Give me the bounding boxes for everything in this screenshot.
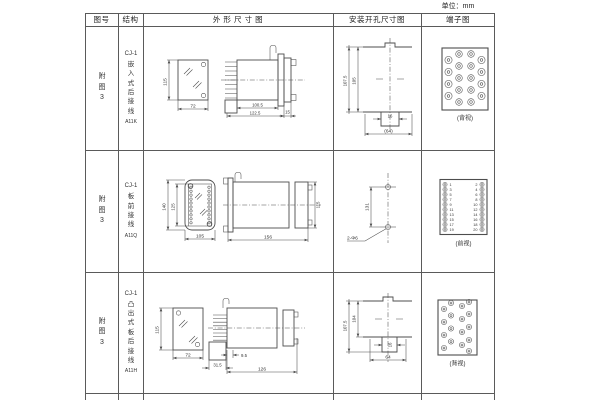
terminal-pins bbox=[445, 51, 485, 106]
front-view: 140 125 105 bbox=[162, 180, 216, 241]
a11k-outline-drawing: 115 72 100.5 122.5 15 bbox=[143, 26, 333, 150]
a11q-outline-drawing: 140 125 105 156 115 bbox=[143, 150, 333, 272]
svg-text:18: 18 bbox=[473, 223, 477, 227]
dim-label: 105 bbox=[196, 234, 204, 240]
view-label: (背视) bbox=[450, 360, 466, 368]
dim-label: 72 bbox=[190, 104, 196, 110]
svg-text:9: 9 bbox=[450, 203, 452, 207]
dim-label: 16 bbox=[388, 342, 393, 347]
structure-cell: CJ-1 凸出式板后接线 A11H bbox=[119, 272, 143, 393]
svg-text:16: 16 bbox=[473, 218, 477, 222]
figure-no-cell: 附图3 bbox=[86, 272, 118, 393]
dim-label: (64) bbox=[384, 129, 393, 135]
figure-no-text: 附图3 bbox=[98, 72, 106, 104]
front-view: 115 72 bbox=[163, 60, 209, 111]
svg-text:14: 14 bbox=[473, 213, 477, 217]
grid-line bbox=[85, 393, 495, 394]
dim-label: 156 bbox=[264, 235, 272, 241]
dim-label: 15 bbox=[285, 110, 290, 115]
a11q-install-drawing: 131 2-Φ6 bbox=[333, 150, 421, 272]
model-label: CJ-1 bbox=[125, 183, 138, 189]
header-figure-no: 图号 bbox=[85, 14, 118, 25]
svg-text:17: 17 bbox=[450, 223, 454, 227]
svg-text:11: 11 bbox=[450, 208, 454, 212]
structure-type: 凸出式板后接线 bbox=[128, 300, 135, 366]
structure-cell: CJ-1 板前接线 A11Q bbox=[119, 150, 143, 272]
svg-text:13: 13 bbox=[450, 213, 454, 217]
a11k-terminal-diagram: (背视) bbox=[421, 26, 495, 150]
hole-callout: 2-Φ6 bbox=[347, 236, 358, 242]
side-view: 100.5 122.5 15 bbox=[221, 46, 305, 119]
structure-cell: CJ-1 嵌入式后接线 A11K bbox=[119, 26, 143, 150]
svg-text:8: 8 bbox=[475, 198, 477, 202]
terminal-pins bbox=[441, 299, 471, 353]
dim-label: 140 bbox=[162, 203, 167, 211]
svg-text:6: 6 bbox=[475, 193, 477, 197]
svg-text:4: 4 bbox=[475, 188, 477, 192]
dim-label: 64 bbox=[385, 355, 391, 361]
structure-code: A11Q bbox=[125, 233, 137, 239]
model-label: CJ-1 bbox=[125, 51, 138, 57]
figure-no-text: 附图3 bbox=[98, 195, 106, 227]
a11q-terminal-diagram: 12 34 56 78 910 1112 1314 1516 1718 1920… bbox=[421, 150, 495, 272]
structure-type: 板前接线 bbox=[128, 192, 135, 230]
dim-label: 131 bbox=[365, 203, 371, 211]
dim-label: 125 bbox=[171, 203, 176, 211]
figure-no-cell: 附图3 bbox=[86, 26, 118, 150]
dim-label: 115 bbox=[155, 326, 161, 334]
svg-text:7: 7 bbox=[450, 198, 452, 202]
header-install-dims: 安装开孔尺寸图 bbox=[333, 14, 421, 25]
dim-label: 31.5 bbox=[213, 363, 222, 368]
dim-label: 105 bbox=[352, 77, 357, 85]
svg-text:5: 5 bbox=[450, 193, 452, 197]
figure-no-text: 附图3 bbox=[98, 317, 106, 349]
a11h-terminal-diagram: (背视) bbox=[421, 272, 495, 393]
dim-label: 115 bbox=[316, 201, 321, 208]
side-view: 31.5 9.5 126 bbox=[202, 299, 305, 375]
structure-code: A11H bbox=[125, 368, 137, 374]
side-view: 156 115 bbox=[223, 173, 321, 243]
dim-label: 100.5 bbox=[252, 103, 263, 108]
svg-text:2: 2 bbox=[475, 183, 477, 187]
a11h-install-drawing: 107.5 104 16 64 bbox=[333, 272, 421, 393]
dim-label: 107.5 bbox=[343, 75, 348, 86]
svg-text:3: 3 bbox=[450, 188, 452, 192]
structure-type: 嵌入式后接线 bbox=[128, 60, 135, 117]
a11k-install-drawing: 107.5 105 16 (64) bbox=[333, 26, 421, 150]
terminal-numbers: 12 34 56 78 910 1112 1314 1516 1718 1920 bbox=[450, 183, 478, 232]
dim-label: 126 bbox=[258, 367, 266, 373]
svg-text:20: 20 bbox=[473, 228, 477, 232]
dim-label: 72 bbox=[185, 353, 191, 359]
front-view: 115 72 bbox=[155, 308, 204, 360]
unit-label: 单位：mm bbox=[421, 0, 495, 12]
svg-text:12: 12 bbox=[473, 208, 477, 212]
dim-label: 122.5 bbox=[250, 111, 261, 116]
model-label: CJ-1 bbox=[125, 291, 138, 297]
dim-label: 115 bbox=[163, 78, 169, 86]
header-outline-dims: 外 形 尺 寸 图 bbox=[143, 14, 333, 25]
svg-text:19: 19 bbox=[450, 228, 454, 232]
svg-text:1: 1 bbox=[450, 183, 452, 187]
dim-label: 9.5 bbox=[241, 353, 248, 358]
svg-text:15: 15 bbox=[450, 218, 454, 222]
page: 单位：mm 图号 结构 外 形 尺 寸 图 安装开孔尺寸图 端子图 附图3 附图… bbox=[0, 0, 600, 400]
dim-label: 104 bbox=[352, 315, 357, 323]
structure-code: A11K bbox=[125, 119, 137, 125]
dim-label: 107.5 bbox=[343, 320, 348, 331]
view-label: (前视) bbox=[456, 240, 472, 248]
a11h-outline-drawing: 115 72 31.5 9.5 126 bbox=[143, 272, 333, 393]
dim-label: 16 bbox=[388, 114, 393, 119]
view-label: (背视) bbox=[457, 114, 473, 122]
header-terminal-diagram: 端子图 bbox=[421, 14, 495, 25]
header-structure: 结构 bbox=[118, 14, 143, 25]
svg-text:10: 10 bbox=[473, 203, 477, 207]
figure-no-cell: 附图3 bbox=[86, 150, 118, 272]
